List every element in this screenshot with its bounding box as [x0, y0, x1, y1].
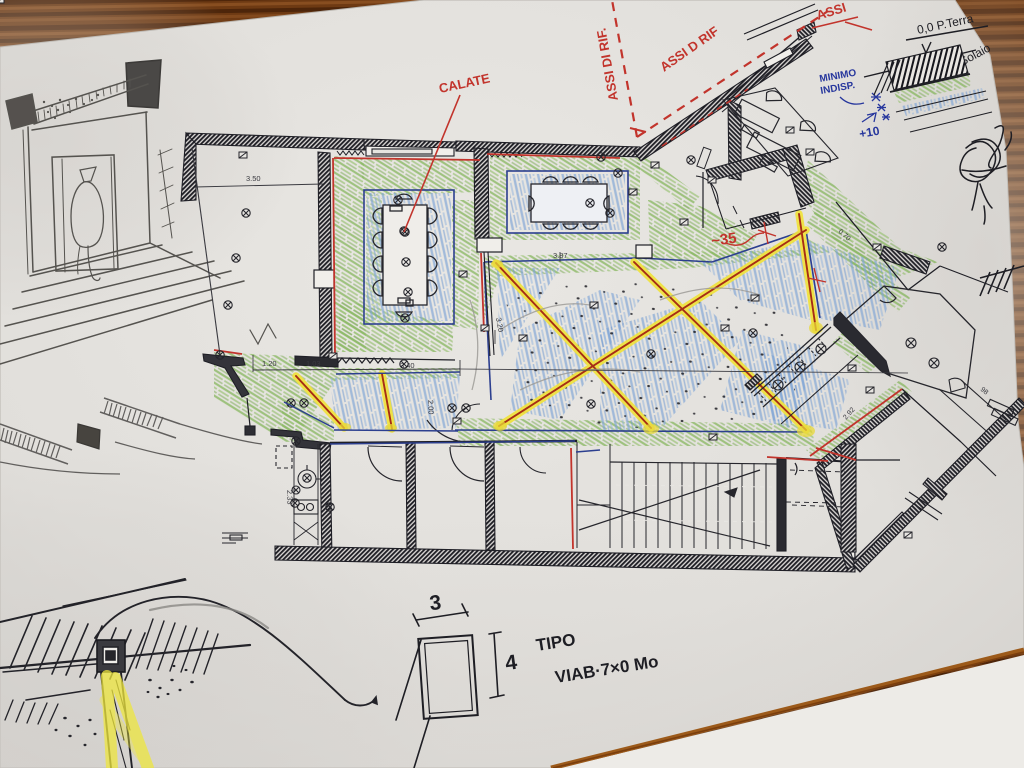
svg-text:1.03: 1.03: [306, 359, 321, 368]
svg-text:3.87: 3.87: [553, 251, 568, 260]
svg-text:1.20: 1.20: [262, 359, 277, 368]
svg-text:~35: ~35: [710, 230, 738, 250]
svg-text:2.33: 2.33: [285, 490, 295, 505]
svg-text:3.50: 3.50: [246, 174, 261, 183]
svg-text:2.00: 2.00: [426, 400, 436, 415]
svg-text:3: 3: [428, 591, 442, 615]
